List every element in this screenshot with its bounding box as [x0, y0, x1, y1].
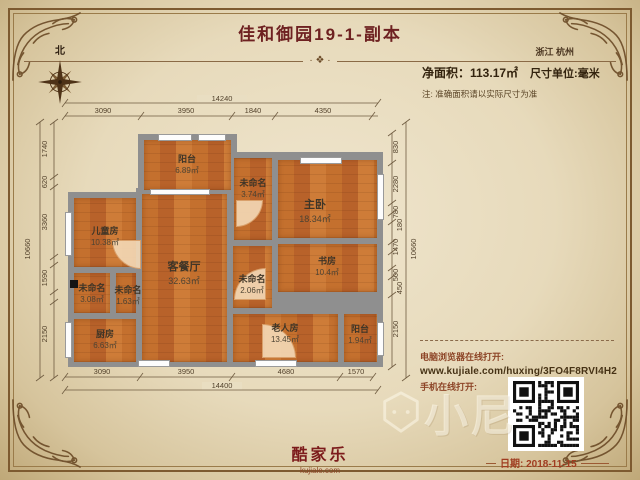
window — [255, 360, 297, 367]
electrical-box — [70, 280, 78, 288]
window — [138, 360, 170, 367]
room-label: 阳台6.89㎡ — [175, 152, 199, 176]
room-label: 老人房13.45㎡ — [271, 321, 299, 345]
window — [65, 322, 72, 358]
window — [377, 322, 384, 356]
date-row: 日期: 2018-11-15 — [486, 455, 609, 470]
room-label: 未命名1.63㎡ — [114, 283, 141, 307]
window — [158, 134, 192, 141]
window — [377, 174, 384, 220]
room-label: 书房10.4㎡ — [315, 254, 339, 278]
room-label: 主卧18.34㎡ — [299, 196, 331, 225]
date-label: 日期: 2018-11-15 — [496, 455, 581, 470]
room-label: 儿童房10.38㎡ — [91, 224, 119, 248]
qr-code — [508, 377, 584, 451]
room-label: 未命名3.74㎡ — [239, 176, 266, 200]
room-label: 阳台1.94㎡ — [348, 322, 372, 346]
room-label: 客餐厅32.63㎡ — [168, 258, 201, 287]
window — [150, 189, 210, 195]
window — [65, 212, 72, 256]
window — [198, 134, 226, 141]
room-label: 厨房6.63㎡ — [93, 327, 117, 351]
room-label: 未命名3.08㎡ — [78, 281, 105, 305]
window — [300, 157, 342, 164]
room-label: 未命名2.06㎡ — [238, 272, 265, 296]
